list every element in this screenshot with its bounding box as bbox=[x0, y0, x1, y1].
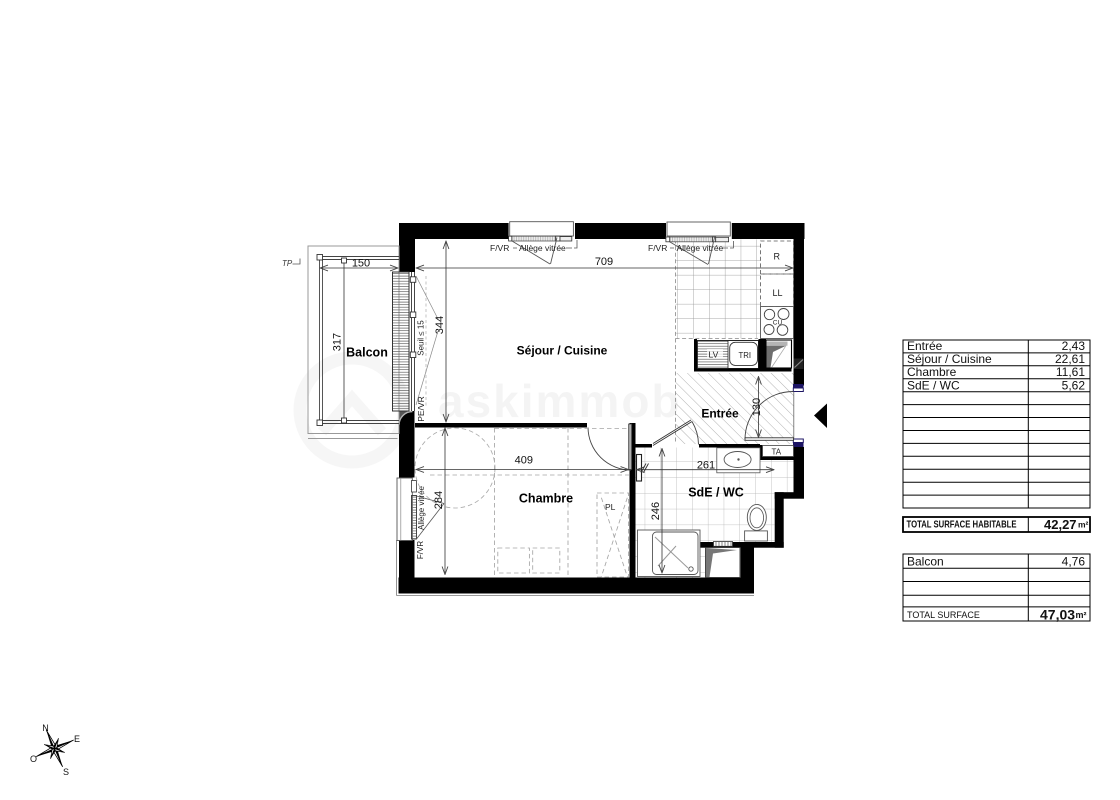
svg-text:Seuil ≤ 15: Seuil ≤ 15 bbox=[417, 320, 426, 356]
svg-text:11,61: 11,61 bbox=[1056, 365, 1085, 379]
svg-text:150: 150 bbox=[352, 258, 370, 270]
svg-text:SdE / WC: SdE / WC bbox=[907, 379, 960, 393]
svg-text:Chambre: Chambre bbox=[519, 492, 573, 506]
svg-text:F/VR: F/VR bbox=[648, 243, 667, 253]
svg-text:TOTAL SURFACE HABITABLE: TOTAL SURFACE HABITABLE bbox=[907, 520, 1017, 531]
svg-text:O: O bbox=[30, 754, 37, 764]
svg-text:askimmob: askimmob bbox=[438, 375, 682, 427]
svg-text:CU: CU bbox=[773, 320, 783, 327]
svg-text:709: 709 bbox=[595, 256, 613, 268]
svg-text:m²: m² bbox=[1078, 520, 1089, 530]
svg-text:Balcon: Balcon bbox=[346, 346, 388, 360]
svg-text:Balcon: Balcon bbox=[907, 555, 944, 569]
svg-text:TP: TP bbox=[282, 259, 293, 268]
svg-text:S: S bbox=[63, 767, 69, 777]
svg-text:TA: TA bbox=[772, 448, 782, 457]
svg-text:PL: PL bbox=[605, 502, 616, 512]
svg-text:Allège vitrée: Allège vitrée bbox=[519, 243, 566, 253]
svg-text:R: R bbox=[774, 252, 781, 262]
svg-text:Séjour / Cuisine: Séjour / Cuisine bbox=[907, 352, 992, 366]
svg-text:284: 284 bbox=[433, 491, 445, 509]
svg-text:Entrée: Entrée bbox=[701, 407, 739, 421]
svg-text:SdE / WC: SdE / WC bbox=[688, 486, 744, 500]
svg-text:317: 317 bbox=[332, 333, 344, 351]
svg-text:m²: m² bbox=[1076, 610, 1087, 620]
svg-text:LL: LL bbox=[773, 288, 783, 298]
svg-text:LV: LV bbox=[709, 350, 719, 360]
svg-text:TOTAL SURFACE: TOTAL SURFACE bbox=[907, 610, 980, 620]
svg-text:409: 409 bbox=[515, 455, 533, 467]
svg-text:22,61: 22,61 bbox=[1055, 352, 1085, 366]
svg-text:42,27: 42,27 bbox=[1044, 517, 1077, 532]
svg-text:PE/VR: PE/VR bbox=[416, 396, 426, 422]
svg-text:Entrée: Entrée bbox=[907, 339, 943, 353]
svg-text:N: N bbox=[42, 723, 49, 733]
svg-text:Séjour / Cuisine: Séjour / Cuisine bbox=[517, 344, 608, 358]
svg-text:47,03: 47,03 bbox=[1040, 607, 1075, 623]
svg-text:TRI: TRI bbox=[739, 351, 752, 360]
svg-text:246: 246 bbox=[650, 502, 662, 520]
svg-text:Allège vitrée: Allège vitrée bbox=[417, 485, 426, 530]
svg-text:F/VR: F/VR bbox=[416, 541, 425, 559]
svg-text:Allège vitrée: Allège vitrée bbox=[677, 243, 724, 253]
svg-text:Chambre: Chambre bbox=[907, 365, 957, 379]
svg-text:130: 130 bbox=[751, 398, 763, 416]
svg-text:344: 344 bbox=[434, 316, 446, 334]
svg-text:F/VR: F/VR bbox=[490, 243, 509, 253]
svg-text:5,62: 5,62 bbox=[1062, 379, 1086, 393]
svg-text:E: E bbox=[74, 734, 80, 744]
svg-text:4,76: 4,76 bbox=[1062, 555, 1086, 569]
svg-text:2,43: 2,43 bbox=[1062, 339, 1086, 353]
svg-text:261: 261 bbox=[697, 460, 715, 472]
